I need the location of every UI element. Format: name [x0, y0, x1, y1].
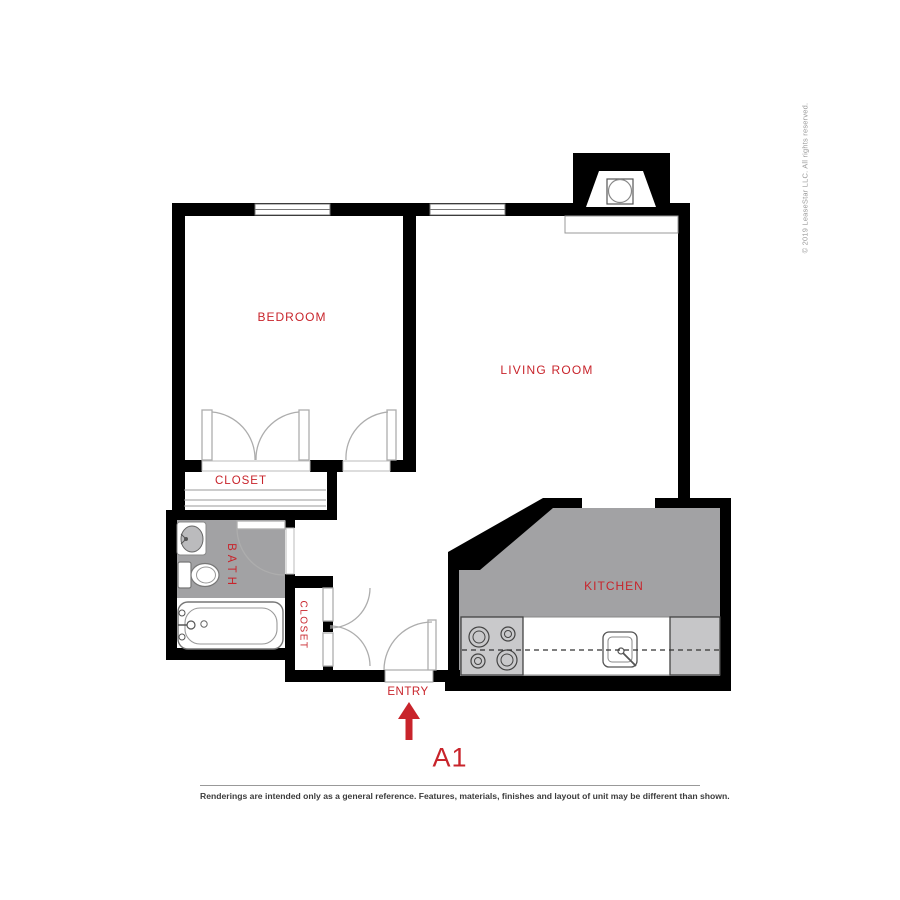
closet-shelf-lines — [184, 490, 326, 506]
copyright-text: © 2019 LeaseStar LLC. All rights reserve… — [801, 103, 810, 254]
stove — [461, 617, 523, 675]
fireplace-hearth — [565, 216, 678, 233]
bathtub — [178, 602, 283, 649]
toilet — [178, 562, 219, 588]
wall-left — [172, 203, 185, 510]
wall-kitchen-bottom — [445, 676, 731, 691]
floor-plan-page: BEDROOM LIVING ROOM KITCHEN CLOSET BATH … — [0, 0, 900, 900]
wall-bath-bottom — [166, 648, 295, 660]
entry-label: ENTRY — [387, 686, 428, 698]
wall-bedroom-living — [403, 203, 416, 472]
bath-label: BATH — [225, 543, 237, 589]
entry-threshold — [385, 670, 433, 682]
wall-kitchen-right — [720, 498, 731, 691]
kitchen-label: KITCHEN — [584, 579, 644, 593]
living-room-label: LIVING ROOM — [500, 363, 593, 377]
door-bedroom-closet-double — [202, 410, 309, 460]
kitchen-fixtures — [461, 617, 722, 675]
wall-bath-right — [285, 574, 295, 682]
bath-sink — [177, 522, 206, 555]
disclaimer-text: Renderings are intended only as a genera… — [200, 785, 700, 801]
fireplace-box — [607, 179, 633, 204]
door-entry — [384, 620, 436, 670]
wall-right-living — [678, 203, 690, 508]
bedroom-label: BEDROOM — [257, 310, 326, 324]
unit-name-label: A1 — [432, 743, 467, 774]
door-bedroom — [346, 410, 396, 460]
wall-kitchen-top — [655, 498, 731, 508]
window-living — [430, 204, 505, 215]
kitchen-counter — [523, 617, 670, 675]
wall-kitchen-left — [448, 552, 459, 691]
entry-arrow-icon — [398, 702, 420, 740]
hall-closet-label: CLOSET — [298, 600, 309, 649]
refrigerator — [670, 617, 720, 675]
wall-bath-left — [166, 510, 177, 660]
window-bedroom — [255, 204, 330, 215]
bedroom-closet-label: CLOSET — [215, 475, 267, 487]
